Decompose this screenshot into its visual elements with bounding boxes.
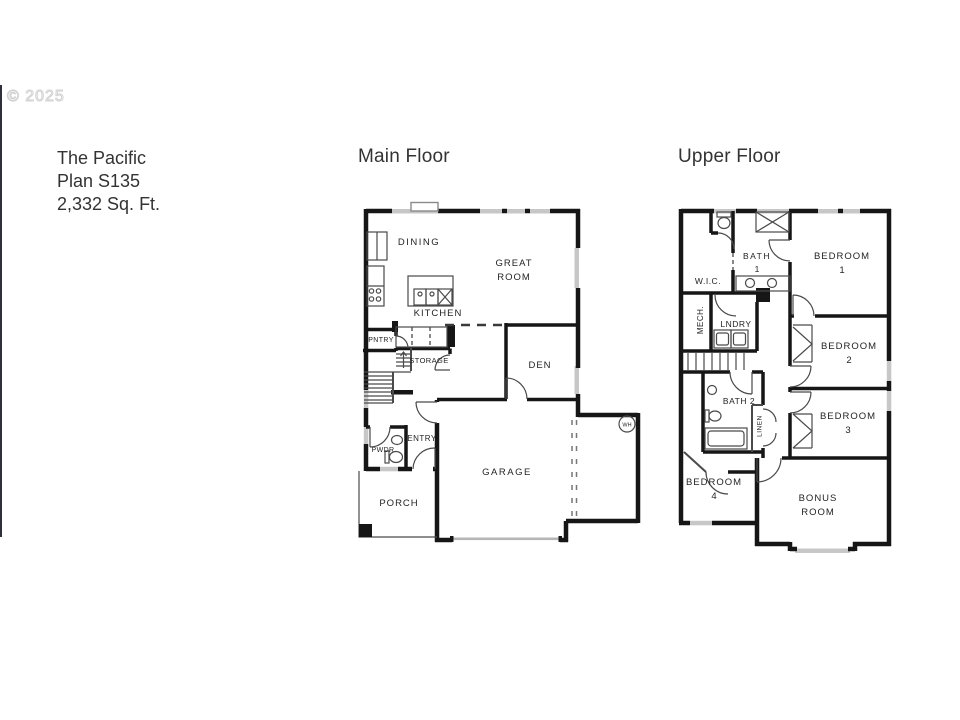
upper-stairs (688, 353, 744, 370)
label-bedroom3-2: 3 (845, 425, 850, 436)
label-bedroom3-1: BEDROOM (820, 411, 876, 422)
linen-doors (763, 409, 776, 446)
sink-bath2 (708, 386, 717, 395)
upper-floor-plan: W.I.C. BATH 1 BEDROOM 1 MECH. LNDRY BEDR… (658, 195, 903, 565)
left-edge-line (0, 85, 2, 537)
label-bonus-2: ROOM (801, 507, 835, 518)
main-kitchen-fixtures (367, 203, 453, 348)
label-bath1-2: 1 (755, 264, 760, 274)
label-great-2: ROOM (497, 272, 531, 283)
main-floor-plan: DINING GREAT ROOM KITCHEN PNTRY STORAGE … (352, 195, 652, 560)
plan-name: The Pacific (57, 147, 160, 170)
porch-post (359, 524, 372, 537)
label-storage: STORAGE (409, 356, 448, 365)
label-bedroom4-1: BEDROOM (686, 477, 742, 488)
bed4-angled-door (684, 452, 706, 472)
plan-title: The Pacific Plan S135 2,332 Sq. Ft. (57, 147, 160, 216)
bay-window-box (411, 203, 438, 212)
main-misc-lines (445, 325, 635, 518)
label-entry: ENTRY (407, 434, 437, 443)
garage-door-opening (452, 538, 560, 541)
main-interior-walls (363, 321, 578, 469)
kitchen-island (408, 276, 453, 306)
label-bedroom1-1: BEDROOM (814, 251, 870, 262)
upper-floor-heading: Upper Floor (678, 146, 781, 168)
label-lndry: LNDRY (720, 319, 751, 329)
main-stairs (364, 348, 411, 403)
toilet-bath1 (718, 218, 730, 229)
label-den: DEN (528, 360, 551, 371)
label-bedroom2-1: BEDROOM (821, 341, 877, 352)
label-pntry: PNTRY (368, 337, 394, 344)
label-garage: GARAGE (482, 467, 532, 478)
upper-doors (706, 233, 814, 494)
label-wh: WH (622, 423, 631, 429)
main-windows (364, 209, 579, 540)
label-pwdr: PWDR (372, 447, 395, 454)
label-mech: MECH. (696, 306, 705, 334)
label-wic: W.I.C. (695, 276, 721, 286)
copyright-watermark: © 2025 (7, 88, 65, 106)
label-kitchen: KITCHEN (414, 308, 463, 319)
plan-number: Plan S135 (57, 170, 160, 193)
label-dining: DINING (398, 237, 440, 248)
label-bath1-1: BATH (743, 251, 771, 261)
label-great-1: GREAT (495, 258, 532, 269)
label-porch: PORCH (379, 498, 418, 509)
label-linen: LINEN (757, 415, 764, 437)
label-bonus-1: BONUS (799, 493, 838, 504)
label-bedroom4-2: 4 (711, 491, 716, 502)
main-floor-heading: Main Floor (358, 146, 450, 168)
toilet-bath2 (709, 411, 721, 421)
label-bedroom1-2: 1 (839, 265, 844, 276)
label-bedroom2-2: 2 (846, 355, 851, 366)
plan-sqft: 2,332 Sq. Ft. (57, 193, 160, 216)
upper-laundry-fixtures (714, 330, 748, 348)
label-bath2: BATH 2 (723, 396, 755, 406)
